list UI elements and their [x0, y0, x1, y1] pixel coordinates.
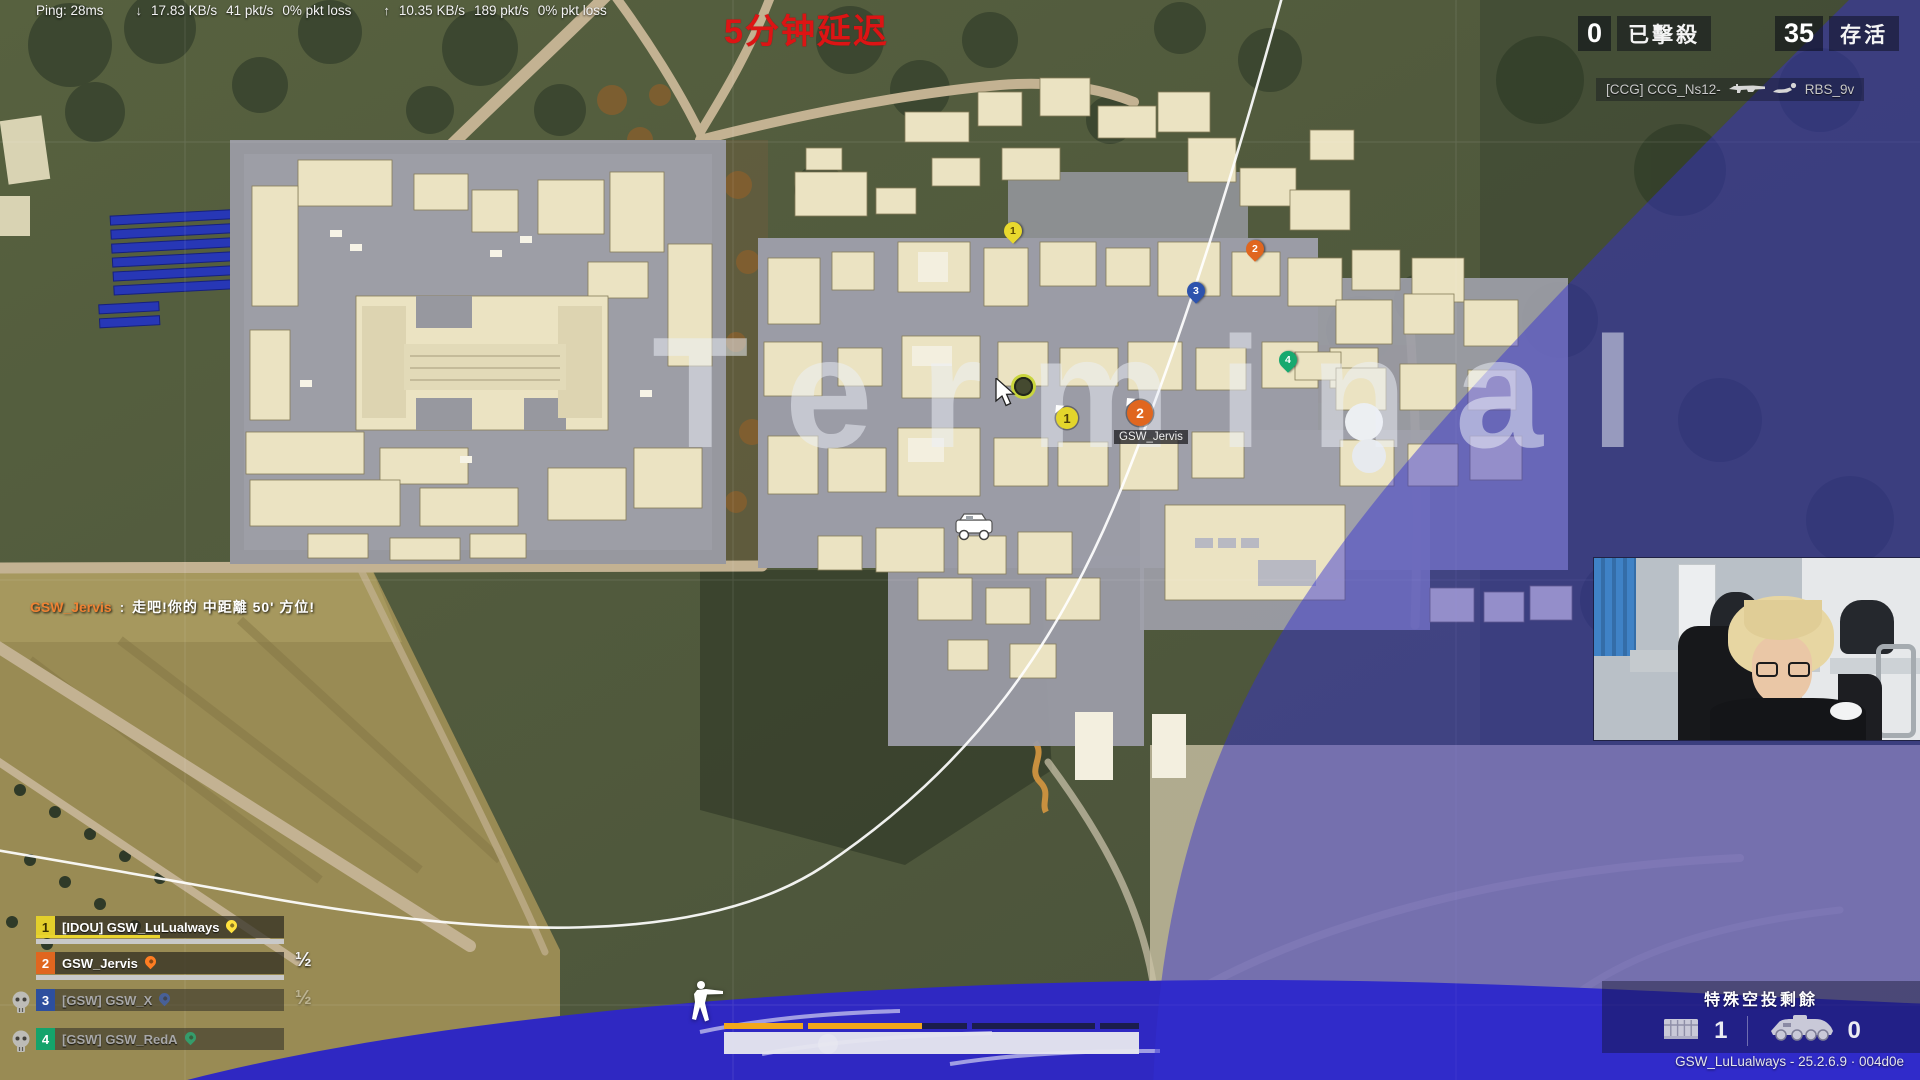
boost-segment: [972, 1023, 1095, 1029]
team-rank-badge: 2: [36, 952, 55, 974]
health-bar: [724, 1032, 1139, 1054]
scoreboard: 0 已擊殺 35 存活: [1578, 16, 1899, 51]
streamer-webcam-overlay: [1594, 558, 1920, 740]
airdrop-crate-count: 1: [1714, 1017, 1727, 1045]
chat-message: GSW_Jervis : 走吧!你的 中距離 50' 方位!: [30, 597, 315, 617]
teammate-pin-icon: [224, 917, 240, 933]
killfeed-entry: [CCG] CCG_Ns12- RBS_9v: [1596, 78, 1864, 101]
chat-text: 走吧!你的 中距離 50' 方位!: [132, 599, 315, 615]
team-player-name: GSW_Jervis: [62, 956, 138, 971]
fraction-badge-dim: ½: [295, 987, 312, 1010]
webcam-glasses: [1756, 662, 1778, 677]
divider: [1747, 1016, 1748, 1046]
webcam-glasses: [1788, 662, 1810, 677]
airdrop-crate-icon: [1661, 1013, 1701, 1048]
kills-label: 已擊殺: [1617, 16, 1711, 51]
alive-value: 35: [1775, 16, 1823, 51]
team-player-name: [GSW] GSW_X: [62, 993, 152, 1008]
download-packets: 41 pkt/s: [226, 3, 273, 18]
upload-packets: 189 pkt/s: [474, 3, 529, 18]
death-skull-icon: [8, 990, 34, 1021]
special-airdrop-panel: 特殊空投剩餘 1: [1602, 981, 1920, 1053]
vehicle-icon: [952, 511, 996, 548]
airdrop-title: 特殊空投剩餘: [1602, 986, 1920, 1010]
rifle-icon: [1729, 82, 1765, 98]
team-health-bar-2: [36, 975, 284, 980]
game-screen: Terminal 1 2 GSW_Jervis 1 2 3 4 Ping: 28…: [0, 0, 1920, 1080]
chat-sender: GSW_Jervis: [30, 599, 112, 615]
killfeed-victim: RBS_9v: [1805, 82, 1855, 97]
download-arrow-icon: ↓: [136, 3, 143, 18]
knockdown-crawl-icon: [1773, 82, 1797, 97]
boost-underline: [36, 935, 160, 938]
download-rate: 17.83 KB/s: [151, 3, 217, 18]
observer-watermark: GSW_LuLualways - 25.2.6.9 · 004d0e: [1675, 1054, 1904, 1069]
team-rank-badge: 3: [36, 989, 55, 1011]
team-row-3[interactable]: 3 [GSW] GSW_X: [36, 989, 284, 1011]
player-stance-icon: [680, 979, 726, 1030]
upload-rate: 10.35 KB/s: [399, 3, 465, 18]
boost-bar: [724, 1023, 1139, 1029]
team-health-bar-1: [36, 939, 284, 944]
map-region-label: Terminal: [652, 314, 1683, 472]
upload-loss: 0% pkt loss: [538, 3, 607, 18]
alive-label: 存活: [1829, 16, 1899, 51]
webcam-curtain: [1594, 558, 1636, 656]
boost-segment: [724, 1023, 803, 1029]
player-marker-1: 1: [1056, 407, 1078, 429]
fraction-badge: ½: [295, 949, 312, 972]
boost-segment: [1100, 1023, 1139, 1029]
webcam-office-chair: [1876, 644, 1916, 738]
killfeed-attacker: [CCG] CCG_Ns12-: [1606, 82, 1721, 97]
team-player-name: [IDOU] GSW_LuLualways: [62, 920, 219, 935]
mouse-cursor-icon: [995, 378, 1021, 415]
teammate-pin-icon: [143, 953, 159, 969]
airdrop-vehicle-count: 0: [1848, 1017, 1861, 1045]
network-stats: Ping: 28ms ↓ 17.83 KB/s 41 pkt/s 0% pkt …: [36, 3, 607, 18]
team-player-name: [GSW] GSW_RedA: [62, 1032, 178, 1047]
team-rank-badge: 4: [36, 1028, 55, 1050]
player-marker-2: 2: [1127, 400, 1153, 426]
team-row-2[interactable]: 2 GSW_Jervis: [36, 952, 284, 974]
team-row-1[interactable]: 1 [IDOU] GSW_LuLualways: [36, 916, 284, 938]
team-row-4[interactable]: 4 [GSW] GSW_RedA: [36, 1028, 284, 1050]
boost-segment: [808, 1023, 967, 1029]
map-player-name-tag: GSW_Jervis: [1114, 430, 1188, 444]
airdrop-vehicle-icon: [1767, 1013, 1835, 1048]
download-loss: 0% pkt loss: [282, 3, 351, 18]
kills-value: 0: [1578, 16, 1611, 51]
upload-arrow-icon: ↑: [383, 3, 390, 18]
death-skull-icon: [8, 1029, 34, 1060]
teammate-pin-icon: [157, 990, 173, 1006]
ping-value: Ping: 28ms: [36, 3, 104, 18]
teammate-pin-icon: [182, 1029, 198, 1045]
delay-banner: 5分钟延迟: [724, 4, 889, 53]
webcam-desk-item: [1830, 702, 1862, 720]
